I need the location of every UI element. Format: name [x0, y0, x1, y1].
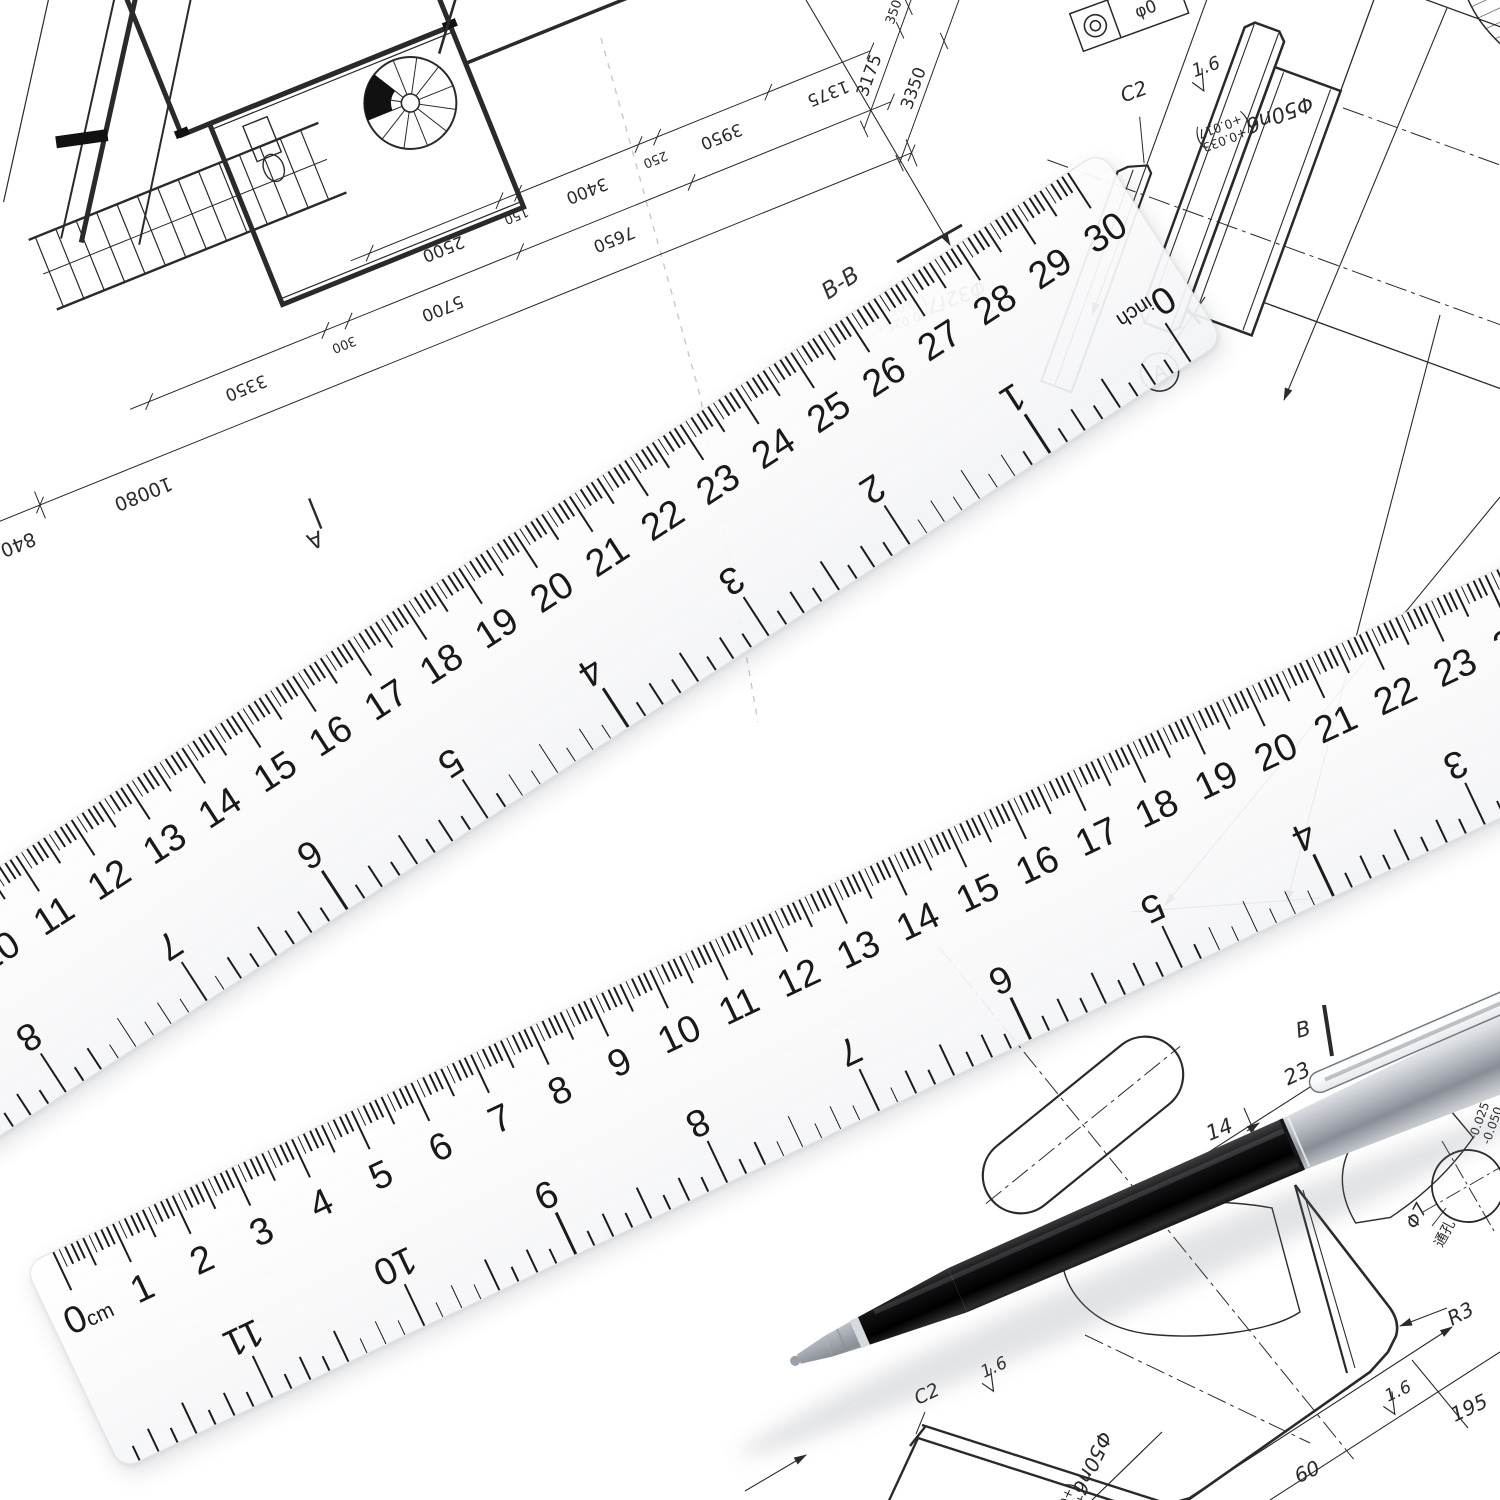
inch-number: 5 [429, 738, 470, 786]
inch-tick [375, 1321, 387, 1344]
inch-tick [450, 1285, 462, 1308]
inch-tick [1024, 414, 1051, 454]
inch-tick [508, 774, 523, 796]
svg-text:1.6: 1.6 [1189, 52, 1223, 82]
dim-3350b: 3350 [222, 370, 270, 405]
cm-number: 18 [412, 635, 471, 694]
inch-tick [1023, 451, 1033, 465]
cm-tick [1455, 589, 1469, 617]
dim-14: 14 [1202, 1113, 1236, 1145]
inch-tick [320, 907, 330, 921]
inch-tick [852, 1105, 860, 1120]
inch-tick [484, 1259, 500, 1291]
inch-tick [939, 1044, 955, 1076]
inch-tick [1394, 829, 1410, 861]
cm-number: 26 [855, 348, 914, 407]
cm-number: 13 [830, 922, 887, 979]
inch-tick [1345, 872, 1353, 887]
inch-tick [473, 1284, 481, 1299]
inch-tick [706, 656, 716, 670]
inch-tick [147, 1428, 159, 1451]
inch-tick [829, 1106, 841, 1129]
inch-number: 9 [527, 1170, 564, 1218]
inch-tick [246, 1392, 254, 1407]
inch-tick [322, 1356, 330, 1371]
dim-2500: 2500 [419, 231, 467, 266]
inch-tick [257, 926, 277, 955]
cm-tick [977, 815, 991, 843]
inch-tick [157, 1002, 172, 1024]
inch-tick [1057, 998, 1069, 1021]
cm-number: 12 [771, 950, 828, 1007]
inch-tick [170, 1428, 178, 1443]
inch-tick [1208, 927, 1220, 950]
inch-tick [549, 1248, 557, 1263]
inch-tick [882, 542, 892, 556]
inch-tick [988, 473, 998, 487]
inch-tick [208, 1410, 216, 1425]
inch-number: 3 [1436, 740, 1473, 788]
inch-tick [625, 1213, 633, 1228]
inch-tick [1000, 454, 1015, 476]
inch-number: 11 [216, 1309, 270, 1365]
cm-tick [1276, 674, 1290, 702]
inch-tick [930, 500, 945, 522]
inch-tick [1464, 782, 1486, 825]
cm-number: 25 [800, 384, 859, 443]
cm-number: 30 [1077, 204, 1136, 263]
wing-walls [0, 0, 338, 285]
inch-tick [74, 1067, 84, 1081]
inch-tick [1165, 322, 1192, 362]
inch-tick [776, 1141, 784, 1156]
inch-number: 3 [711, 556, 752, 604]
cm-number: 27 [911, 312, 970, 371]
cm-number: 8 [542, 1068, 579, 1116]
inch-tick [86, 1048, 101, 1070]
inch-tick [531, 770, 541, 784]
inch-tick [1231, 926, 1239, 941]
gdt-value: φ0 [1132, 0, 1160, 23]
inch-tick [1496, 801, 1500, 816]
dim-3950: 3950 [698, 119, 746, 154]
cm-number: 24 [744, 420, 803, 479]
left-plate [745, 1425, 1240, 1500]
inch-tick [700, 1177, 708, 1192]
inch-tick [787, 1116, 803, 1148]
cm-number: 6 [422, 1124, 459, 1172]
inch-tick [390, 861, 400, 875]
cm-number: 9 [601, 1039, 638, 1087]
dim-195: 195 [1447, 1389, 1492, 1427]
inch-tick [462, 779, 489, 819]
inch-number: 4 [1285, 811, 1322, 859]
inch-number: 6 [982, 955, 1019, 1003]
inch-tick [602, 688, 629, 728]
inch-tick [671, 679, 681, 693]
cm-number: 24 [1487, 612, 1500, 669]
dim-10080: 10080 [111, 472, 175, 515]
inch-tick [1141, 363, 1156, 385]
cm-number: 10 [0, 923, 28, 982]
cm-number: 16 [1009, 838, 1066, 895]
inch-tick [636, 702, 646, 716]
product-photo-scene: 840 10080 3350 300 5700 7650 2500 150 34… [0, 0, 1500, 1500]
rooms [73, 0, 709, 318]
inch-tick [180, 962, 207, 1002]
cm-zero-label: 0cm [57, 1285, 120, 1345]
dim-1375: 1375 [804, 75, 852, 110]
inch-tick [890, 1087, 898, 1102]
cm-number: 7 [482, 1096, 519, 1144]
cm-tick [918, 843, 932, 871]
hatched-section-1 [1061, 1201, 1300, 1336]
inch-tick [1313, 854, 1335, 897]
right-plate [1085, 1185, 1397, 1500]
inch-tick [847, 565, 857, 579]
cm-tick [1037, 786, 1051, 814]
plate-dia-callout: Φ50n6 +0.033 +0.017 ( ) [1038, 1425, 1118, 1500]
inch-tick [1101, 378, 1121, 407]
cm-tick [381, 1097, 395, 1125]
inch-tick [3, 1113, 13, 1127]
hole-note-label: 通孔 [1431, 1218, 1458, 1250]
cm-tick [82, 1238, 96, 1266]
cm-number: 2 [184, 1237, 221, 1285]
inch-tick [132, 1445, 140, 1460]
concentricity-icon [1081, 12, 1109, 40]
inch-tick [981, 1034, 993, 1057]
inch-tick [538, 744, 558, 773]
dim-840: 840 [0, 527, 39, 561]
cm-tick [1156, 730, 1170, 758]
inch-number: 5 [1133, 883, 1170, 931]
inch-tick [1079, 998, 1087, 1013]
inch-number: 4 [570, 647, 611, 695]
inch-tick [109, 1044, 119, 1058]
cm-tick [679, 956, 693, 984]
cm-tick [1216, 702, 1230, 730]
inch-tick [227, 957, 242, 979]
plate-roughness-1: 1.6 [974, 1353, 1015, 1394]
cm-number: 1 [124, 1265, 161, 1313]
inch-tick [1117, 980, 1125, 995]
inch-tick [144, 1021, 154, 1035]
inch-tick [860, 546, 875, 568]
inch-tick [284, 1374, 292, 1389]
cm-number: 22 [1367, 668, 1424, 725]
inch-tick [16, 1094, 31, 1116]
inch-tick [368, 865, 383, 887]
cm-number: 29 [1021, 240, 1080, 299]
inch-tick [753, 1142, 765, 1165]
cm-tick [202, 1181, 216, 1209]
inch-tick [1041, 1016, 1049, 1031]
inch-tick [285, 930, 295, 944]
hole-dia-label: Φ7 [1402, 1199, 1433, 1232]
inch-tick [578, 728, 593, 750]
section-label-b: B [1293, 1016, 1313, 1043]
inch-tick [707, 1140, 729, 1183]
inch-tick [297, 911, 312, 933]
inch-tick [1128, 382, 1138, 396]
inch-tick [299, 1357, 311, 1380]
dim-23: 23 [1280, 1057, 1314, 1090]
inch-tick [40, 1053, 67, 1093]
inch-tick [1004, 1033, 1012, 1048]
inch-tick [966, 1051, 974, 1066]
cm-number: 3 [243, 1209, 280, 1257]
inch-tick [425, 839, 435, 853]
inch-tick [398, 835, 418, 864]
cm-number: 11 [712, 979, 766, 1035]
inch-tick [719, 637, 734, 659]
inch-tick [321, 870, 348, 910]
shaft-dia-callout: Φ50n6 +0.033 +0.017 ( ) [1190, 84, 1317, 157]
inch-number: 7 [830, 1026, 867, 1074]
gdt-frame: φ0 [1070, 0, 1189, 51]
inch-tick [555, 1212, 577, 1255]
cm-number: 23 [1427, 640, 1484, 697]
section-label-bb: B-B [817, 262, 864, 305]
cm-tick [1097, 758, 1111, 786]
inch-tick [649, 683, 664, 705]
inch-tick [403, 1284, 425, 1327]
dim-150: 150 [502, 203, 531, 226]
inch-tick [435, 1302, 443, 1317]
dim-250: 250 [641, 147, 670, 170]
inch-tick [460, 816, 470, 830]
inch-tick [117, 1018, 137, 1047]
cm-tick [142, 1210, 156, 1238]
inch-tick [928, 1069, 936, 1084]
hole-dia-top: Φ7 [1394, 1033, 1427, 1063]
inch-tick [883, 505, 910, 545]
cm-number: 5 [363, 1152, 400, 1200]
inch-tick [496, 793, 506, 807]
inch-tick [1010, 997, 1032, 1040]
dim-300: 300 [329, 332, 358, 355]
inch-tick [223, 1392, 235, 1415]
inch-tick [566, 747, 576, 761]
cm-number: 17 [357, 671, 416, 730]
inch-tick [1269, 908, 1277, 923]
cm-number: 14 [890, 894, 947, 951]
cm-number: 19 [1188, 753, 1245, 810]
inch-tick [359, 1338, 367, 1353]
hatched-section-2 [1312, 1077, 1480, 1238]
cm-number: 17 [1069, 809, 1126, 866]
cm-tick [321, 1125, 335, 1153]
inch-tick [252, 1355, 274, 1398]
inch-tick [438, 820, 453, 842]
inch-number: 7 [148, 921, 189, 969]
cm-number: 10 [651, 1007, 708, 1064]
inch-tick [1382, 854, 1390, 869]
inch-tick [917, 519, 927, 533]
inch-tick [1091, 972, 1107, 1004]
inch-tick [181, 1402, 197, 1434]
inch-tick [1435, 819, 1447, 842]
dim-3175: 3175 [853, 52, 887, 99]
inch-number: 8 [679, 1098, 716, 1146]
inch-tick [355, 884, 365, 898]
axis-marker-a: A [303, 525, 326, 554]
inch-tick [789, 591, 804, 613]
inch-tick [1458, 819, 1466, 834]
cm-tick [500, 1040, 514, 1068]
cm-tick [1395, 617, 1409, 645]
inch-tick [738, 1159, 746, 1174]
cm-number: 28 [966, 276, 1025, 335]
inch-tick [1284, 891, 1296, 914]
dim-23-14 [1145, 1053, 1363, 1193]
cm-tick [858, 871, 872, 899]
inch-tick [333, 1331, 349, 1363]
dim-7650: 7650 [590, 221, 638, 256]
cm-number: 22 [634, 492, 693, 551]
inch-tick [1058, 428, 1068, 442]
inch-tick [636, 1187, 652, 1219]
dim-5700: 5700 [419, 291, 467, 326]
dim-3400: 3400 [563, 173, 611, 208]
inch-tick [1242, 901, 1258, 933]
inch-tick [952, 496, 962, 510]
inch-tick [179, 998, 189, 1012]
inch-tick [1307, 890, 1315, 905]
cm-number: 11 [26, 888, 83, 946]
inch-tick [777, 610, 787, 624]
inch-tick [602, 1213, 614, 1236]
inch-tick [679, 652, 699, 681]
stair-run [30, 123, 346, 309]
inch-number: 10 [366, 1237, 423, 1294]
cm-tick [1335, 645, 1349, 673]
cm-tick [440, 1069, 454, 1097]
inch-tick [1163, 359, 1173, 373]
inch-tick [905, 1070, 917, 1093]
inch-tick [663, 1195, 671, 1210]
inch-number: 8 [8, 1012, 49, 1060]
cm-number: 21 [1308, 697, 1365, 754]
inch-tick [1193, 944, 1201, 959]
cm-tick [261, 1153, 275, 1181]
cm-tick [798, 899, 812, 927]
inch-tick [1420, 836, 1428, 851]
inch-tick [1360, 855, 1372, 878]
inch-tick [214, 976, 224, 990]
cm-number: 15 [950, 866, 1007, 923]
inch-tick [511, 1266, 519, 1281]
inch-tick [812, 588, 822, 602]
dim-r3: R3 [1443, 1297, 1478, 1331]
inch-tick [1132, 963, 1144, 986]
cm-number: 12 [80, 851, 139, 910]
inch-tick [742, 633, 752, 647]
cm-number: 21 [578, 528, 637, 587]
dim-3350: 3350 [897, 65, 931, 112]
inch-number: 1 [992, 373, 1033, 421]
inch-tick [820, 561, 840, 590]
inch-tick [39, 1090, 49, 1104]
cm-tick [560, 1012, 574, 1040]
inch-tick [1071, 409, 1086, 431]
edge-tolerance-partial: -0.025 -0.050 [1466, 1100, 1500, 1146]
inch-tick [587, 1231, 595, 1246]
inch-tick [1155, 962, 1163, 977]
cm-number: 13 [136, 815, 195, 874]
inch-tick [397, 1320, 405, 1335]
cm-tick [619, 984, 633, 1012]
cm-number: 20 [523, 563, 582, 622]
cm-tick [739, 928, 753, 956]
cm-number: 20 [1248, 725, 1305, 782]
inch-tick [250, 953, 260, 967]
cm-number: 19 [468, 599, 527, 658]
inch-tick [960, 470, 980, 499]
cm-number: 16 [302, 707, 361, 766]
svg-text:1.6: 1.6 [1382, 1377, 1415, 1407]
cm-number: 4 [303, 1181, 340, 1229]
svg-text:1.6: 1.6 [978, 1353, 1011, 1383]
plate-roughness-2: 1.6 [1376, 1377, 1418, 1417]
inch-tick [526, 1249, 538, 1272]
dim-350: 350 [883, 0, 906, 26]
cm-number: 23 [689, 456, 748, 515]
inch-tick [678, 1178, 690, 1201]
cm-number: 18 [1129, 781, 1186, 838]
cm-number: 15 [246, 743, 305, 802]
inch-tick [858, 1069, 880, 1112]
inch-number: 2 [851, 464, 892, 512]
inch-tick [1161, 926, 1183, 969]
inch-number: 6 [289, 830, 330, 878]
inch-tick [601, 724, 611, 738]
inch-tick [1093, 405, 1103, 419]
inch-tick [743, 596, 770, 636]
shaft-chamfer-label: C2 [1117, 76, 1150, 108]
dimension-chains-right: 3175 350 1125 3350 4200 [834, 0, 1003, 171]
plate-chamfer-label: C2 [911, 1379, 943, 1410]
cm-number: 14 [191, 779, 250, 838]
inch-tick [814, 1123, 822, 1138]
shaft-roughness-flag: 1.6 [1185, 52, 1227, 93]
